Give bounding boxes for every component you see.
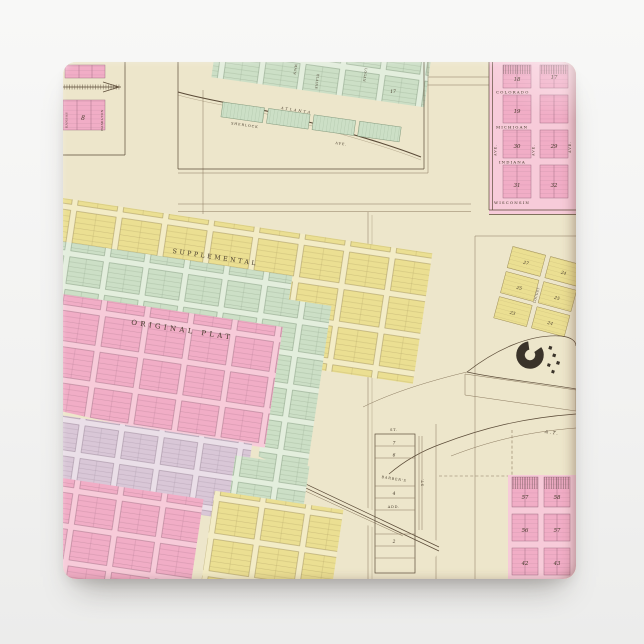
block-number: 18: [514, 77, 521, 83]
block-number: 57: [554, 528, 561, 534]
block-number: 17: [390, 90, 396, 95]
street-label: ST.: [390, 428, 398, 432]
block-number: 17: [551, 75, 558, 81]
product-photo-page: { "colors":{ "page_bg":"#f3f3f2","map_cr…: [0, 0, 644, 644]
block-number: 42: [521, 561, 529, 567]
street-label: HAMILTON: [100, 109, 104, 131]
block-number: 56: [522, 528, 529, 534]
street-label: ST.: [421, 478, 425, 486]
addition-label: ADD.: [387, 505, 400, 509]
lot-number: 6: [393, 454, 396, 459]
street-label: WISCONSIN: [494, 200, 530, 205]
street-label: INDIANA: [499, 160, 526, 165]
street-label: KANSAS: [65, 112, 69, 128]
lot-number: 2: [392, 540, 396, 545]
street-label: MICHIGAN: [496, 125, 528, 130]
atlas-map: KANSAS HAMILTON 8 MAIN BLAINE LOGAN ATLA…: [63, 62, 576, 579]
built-lots-hatch: [512, 477, 538, 489]
block-number: 19: [514, 109, 521, 115]
lot-number: 4: [392, 492, 396, 497]
block-number: 30: [514, 144, 521, 150]
block-number: 32: [551, 183, 558, 189]
magnet-product: KANSAS HAMILTON 8 MAIN BLAINE LOGAN ATLA…: [63, 62, 576, 579]
built-lots-hatch: [540, 65, 568, 74]
block-number: 57: [522, 495, 529, 501]
city-block: [65, 65, 105, 78]
inset-top-right: 18 17 19 30 29 31 32 COLORADO MICHIGAN I…: [489, 62, 576, 215]
built-lots-hatch: [544, 477, 570, 489]
avenue-label: AVE.: [568, 141, 572, 154]
avenue-label: AVE.: [494, 144, 498, 157]
block-number: 58: [554, 495, 561, 501]
street-label: COLORADO: [496, 90, 529, 95]
built-lots-hatch: [503, 65, 531, 74]
block-number: 29: [550, 144, 558, 150]
avenue-label: AVE.: [532, 144, 536, 157]
lot-number: 7: [393, 442, 396, 447]
inset-bottom-right: 57 58 56 57 42 43: [508, 475, 576, 579]
block-number: 31: [514, 183, 521, 189]
block-number: 43: [553, 561, 561, 567]
block-number: 8: [81, 115, 85, 122]
